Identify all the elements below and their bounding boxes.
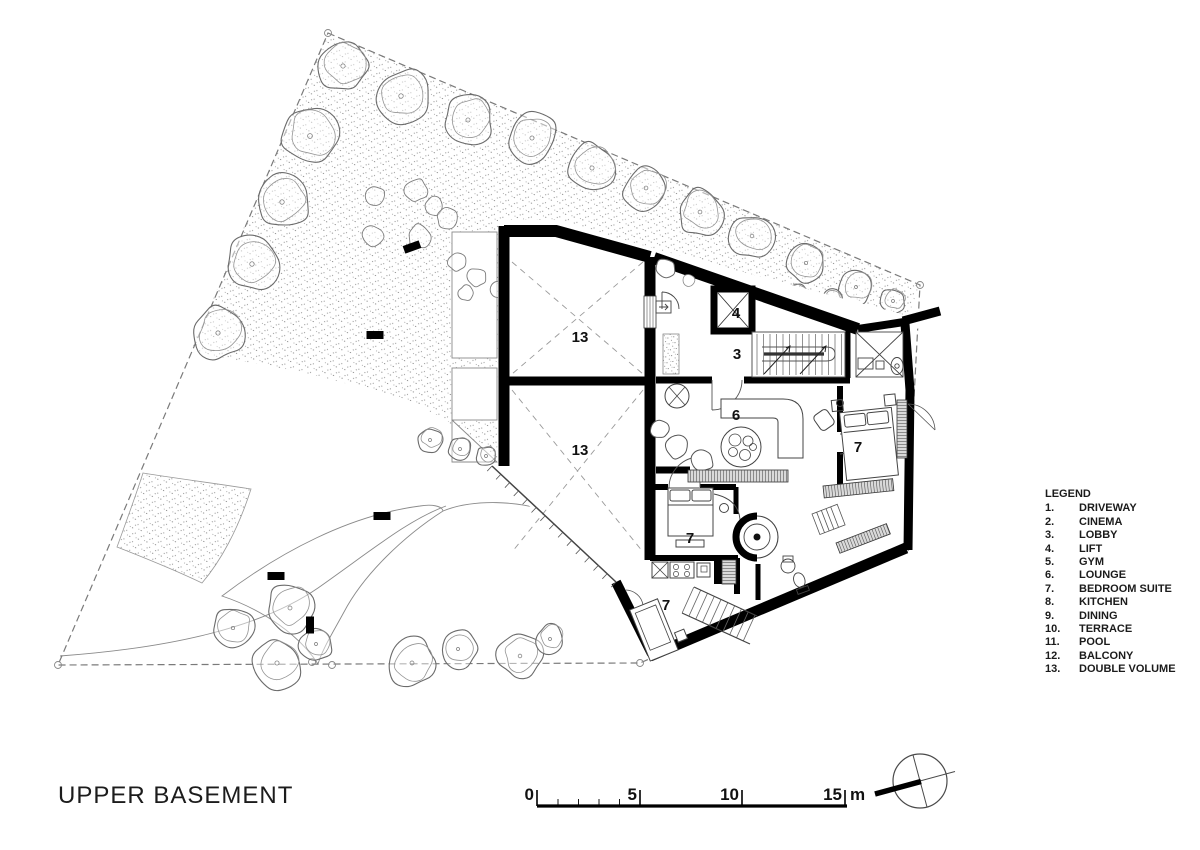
room-label-lobby: 3 xyxy=(733,346,741,363)
scale-tick-5: 5 xyxy=(628,785,637,804)
legend-item-label: KITCHEN xyxy=(1079,596,1176,609)
legend-item-number: 2. xyxy=(1045,516,1079,529)
window-block-a xyxy=(644,296,656,328)
site-plan-drawing: 13 13 4 3 6 7 7 7 0 5 10 15 m xyxy=(0,0,1200,850)
kitchen xyxy=(652,562,710,578)
legend-item: 4.LIFT xyxy=(1045,543,1176,556)
main-staircase xyxy=(752,332,845,377)
legend: LEGEND 1.DRIVEWAY 2.CINEMA 3.LOBBY 4.LIF… xyxy=(1045,488,1176,677)
scale-tick-10: 10 xyxy=(720,785,739,804)
legend-item-label: POOL xyxy=(1079,636,1176,649)
legend-item-label: DRIVEWAY xyxy=(1079,502,1176,515)
legend-item-number: 5. xyxy=(1045,556,1079,569)
legend-item: 9.DINING xyxy=(1045,610,1176,623)
legend-item-number: 4. xyxy=(1045,543,1079,556)
legend-item: 8.KITCHEN xyxy=(1045,596,1176,609)
legend-item-number: 1. xyxy=(1045,502,1079,515)
room-label-bedroom-bottom: 7 xyxy=(662,597,670,614)
legend-item-number: 9. xyxy=(1045,610,1079,623)
legend-item-label: BEDROOM SUITE xyxy=(1079,583,1176,596)
room-label-bedroom-right: 7 xyxy=(854,439,862,456)
room-label-double-volume-lower: 13 xyxy=(572,442,589,459)
legend-item: 11.POOL xyxy=(1045,636,1176,649)
room-label-lift: 4 xyxy=(732,305,741,322)
legend-item-number: 7. xyxy=(1045,583,1079,596)
legend-item-label: LOBBY xyxy=(1079,529,1176,542)
legend-item: 3.LOBBY xyxy=(1045,529,1176,542)
legend-item-label: DOUBLE VOLUME xyxy=(1079,663,1176,676)
bathroom-top-right xyxy=(856,332,903,377)
legend-item-label: BALCONY xyxy=(1079,650,1176,663)
legend-item: 13.DOUBLE VOLUME xyxy=(1045,663,1176,676)
room-label-lounge: 6 xyxy=(732,407,740,424)
legend-item-number: 3. xyxy=(1045,529,1079,542)
legend-item-label: TERRACE xyxy=(1079,623,1176,636)
legend-item: 12.BALCONY xyxy=(1045,650,1176,663)
planting-wedge xyxy=(117,473,251,583)
legend-item: 10.TERRACE xyxy=(1045,623,1176,636)
drawing-title: UPPER BASEMENT xyxy=(58,782,293,810)
legend-item-number: 13. xyxy=(1045,663,1079,676)
room-label-double-volume-upper: 13 xyxy=(572,329,589,346)
legend-item-label: DINING xyxy=(1079,610,1176,623)
legend-item-label: LIFT xyxy=(1079,543,1176,556)
site-plan-sheet: 13 13 4 3 6 7 7 7 0 5 10 15 m UPPER BASE… xyxy=(0,0,1200,850)
north-arrow xyxy=(875,754,955,808)
legend-item-number: 12. xyxy=(1045,650,1079,663)
scale-tick-15: 15 xyxy=(823,785,842,804)
legend-item: 2.CINEMA xyxy=(1045,516,1176,529)
scale-bar: 0 5 10 15 m xyxy=(525,785,866,806)
legend-item: 1.DRIVEWAY xyxy=(1045,502,1176,515)
legend-item: 6.LOUNGE xyxy=(1045,569,1176,582)
legend-item-label: LOUNGE xyxy=(1079,569,1176,582)
legend-item-label: GYM xyxy=(1079,556,1176,569)
legend-item-label: CINEMA xyxy=(1079,516,1176,529)
legend-heading: LEGEND xyxy=(1045,488,1176,501)
room-label-bedroom-mid: 7 xyxy=(686,530,694,547)
scale-tick-0: 0 xyxy=(525,785,534,804)
legend-item-number: 11. xyxy=(1045,636,1079,649)
legend-item-number: 10. xyxy=(1045,623,1079,636)
legend-item: 7.BEDROOM SUITE xyxy=(1045,583,1176,596)
legend-item: 5.GYM xyxy=(1045,556,1176,569)
legend-item-number: 8. xyxy=(1045,596,1079,609)
legend-item-number: 6. xyxy=(1045,569,1079,582)
scale-unit: m xyxy=(850,785,865,804)
